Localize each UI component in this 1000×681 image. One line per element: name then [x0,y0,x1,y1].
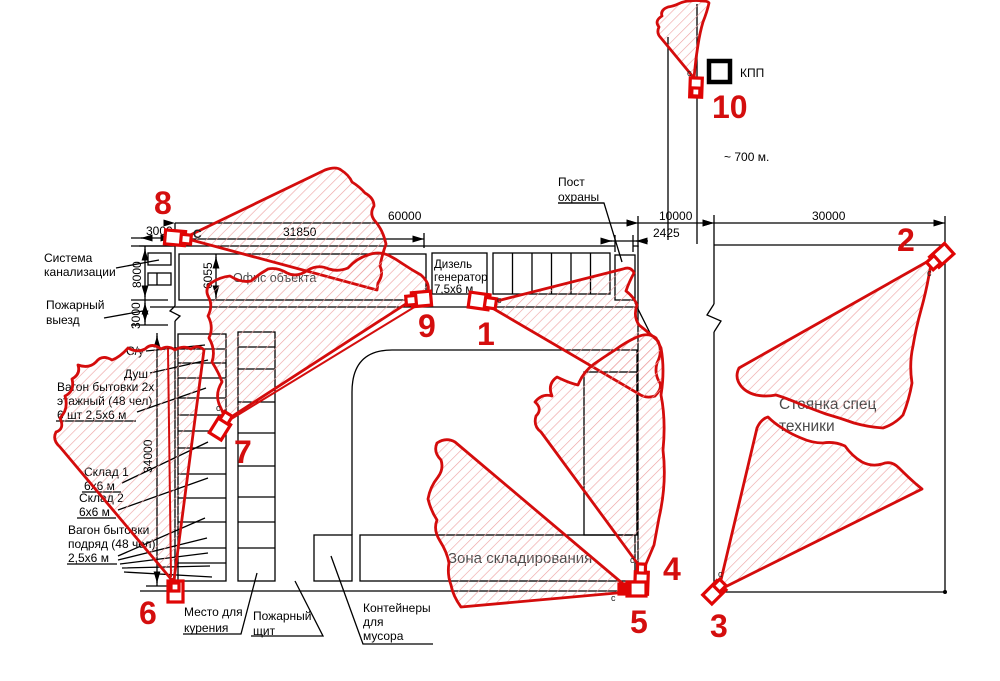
svg-text:9: 9 [418,308,436,344]
svg-text:С: С [193,227,202,241]
svg-text:6: 6 [139,595,157,631]
svg-text:10000: 10000 [659,209,693,223]
svg-text:КПП: КПП [740,66,764,80]
svg-text:6х6 м: 6х6 м [79,505,110,519]
svg-text:с: с [216,403,221,413]
svg-text:с: с [630,555,635,565]
svg-text:с: с [611,593,616,603]
svg-text:с: с [497,295,502,305]
svg-text:~ 700 м.: ~ 700 м. [724,150,769,164]
svg-text:охраны: охраны [558,190,599,204]
svg-text:10: 10 [712,89,748,125]
svg-text:канализации: канализации [44,265,116,279]
svg-text:Пожарный: Пожарный [253,609,312,623]
svg-text:с: с [718,569,723,579]
svg-text:5: 5 [630,604,648,640]
svg-text:3000: 3000 [129,302,143,329]
svg-text:Контейнеры: Контейнеры [363,601,431,615]
svg-text:2425: 2425 [653,226,680,240]
svg-text:Дизель: Дизель [434,259,472,271]
svg-text:Система: Система [44,251,93,265]
svg-text:с: с [687,68,692,78]
svg-text:7,5х6 м: 7,5х6 м [434,284,473,296]
svg-text:2: 2 [897,222,915,258]
svg-text:генератор: генератор [434,272,488,284]
svg-text:мусора: мусора [363,629,404,643]
svg-text:7: 7 [234,434,252,470]
svg-text:4: 4 [663,551,681,587]
svg-text:выезд: выезд [46,313,80,327]
svg-text:30000: 30000 [812,209,846,223]
svg-text:2,5х6 м: 2,5х6 м [68,551,109,565]
svg-text:курения: курения [184,621,228,635]
svg-text:Место для: Место для [184,605,243,619]
svg-text:с: с [927,268,932,278]
svg-text:для: для [363,615,384,629]
svg-text:8: 8 [154,185,172,221]
svg-text:3: 3 [710,608,728,644]
svg-text:8000: 8000 [130,261,144,288]
svg-text:60000: 60000 [388,209,422,223]
svg-text:щит: щит [253,624,276,638]
svg-text:Пожарный: Пожарный [46,298,105,312]
svg-text:Пост: Пост [558,175,585,189]
svg-text:1: 1 [477,316,495,352]
